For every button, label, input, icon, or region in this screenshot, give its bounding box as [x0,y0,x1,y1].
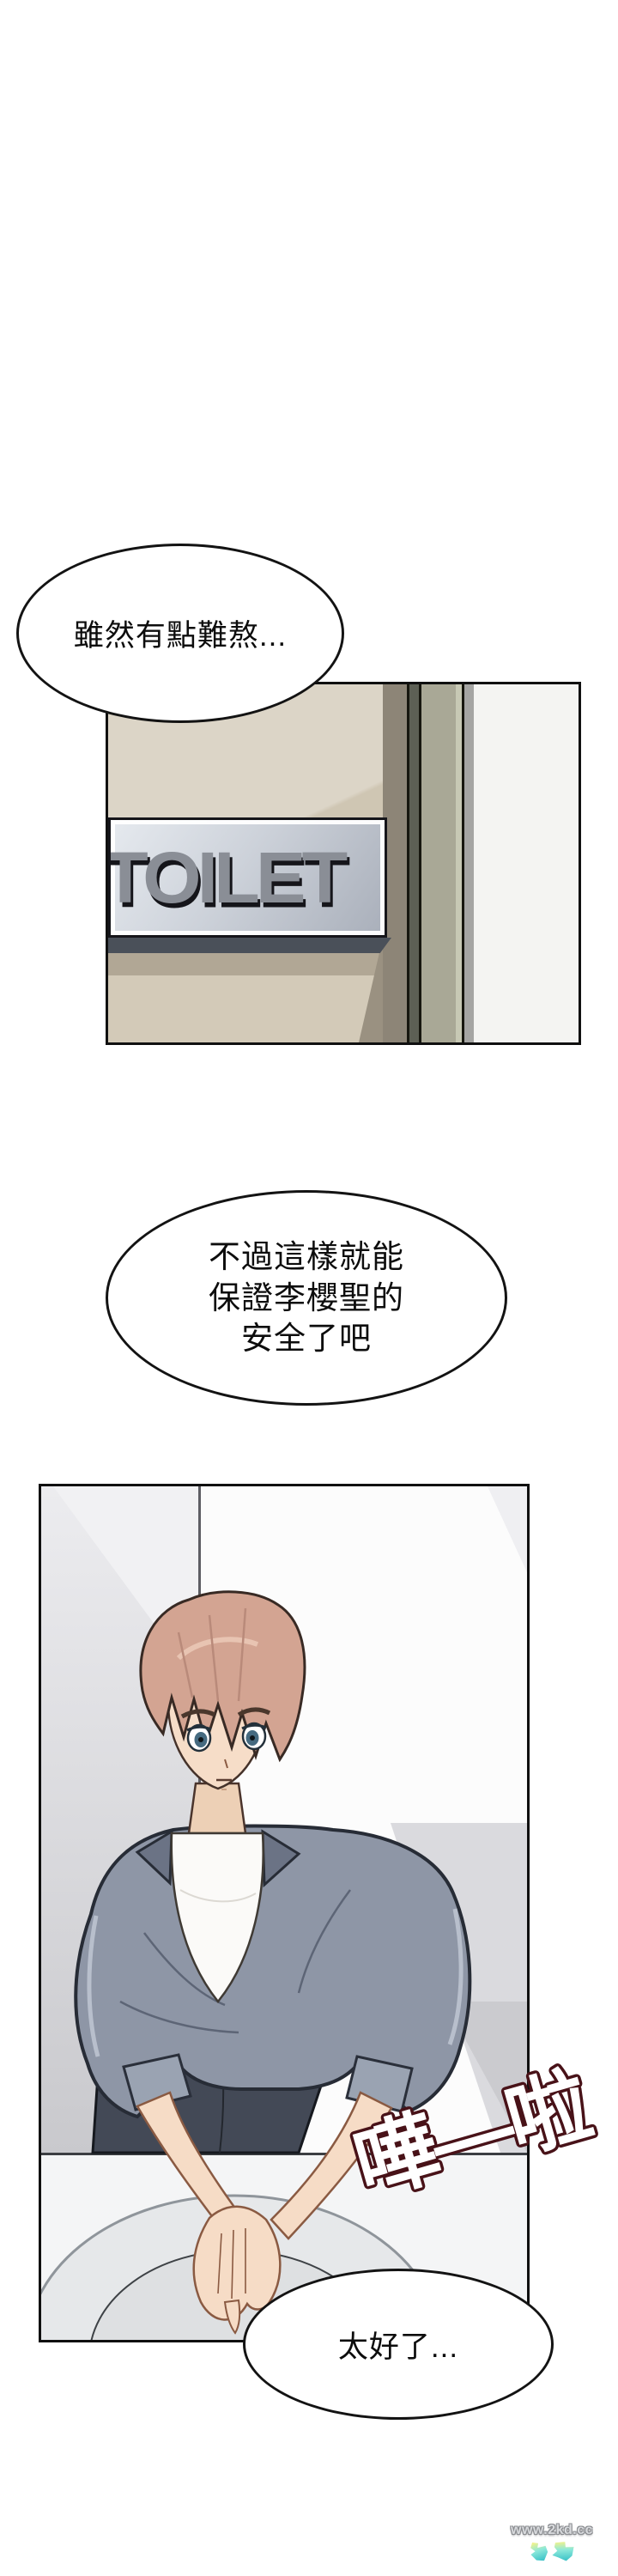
speech-bubble-3: 太好了... [243,2269,554,2420]
speech-line: 不過這樣就能 [209,1236,404,1277]
watermark-logo [494,2539,610,2563]
sfx-splash-text: 嘩—啦 [344,2059,599,2213]
speech-bubble-1: 雖然有點難熬... [16,544,344,723]
watermark-url: www.2kd.cc [494,2523,610,2538]
toilet-sign: TOILET [108,817,387,938]
sfx-splash: 嘩—啦 [324,2016,618,2257]
neck [189,1783,245,1833]
speech-line: 保證李櫻聖的 [209,1278,404,1318]
door-frame-strip [421,684,456,1042]
watermark: www.2kd.cc [494,2523,610,2563]
speech-bubble-2-text: 不過這樣就能 保證李櫻聖的 安全了吧 [209,1236,404,1358]
door-frame-dark-strip [409,684,419,1042]
speech-line: 安全了吧 [209,1318,404,1358]
speech-bubble-3-text: 太好了... [338,2323,458,2366]
door-frame-gray-strip [464,684,474,1042]
sign-shadow-strip [108,938,391,953]
logo-glyph-icon [552,2541,574,2561]
door-lower-band [108,953,383,975]
pupil-left [198,1737,203,1742]
panel-toilet-door: TOILET [106,682,581,1045]
wall [474,684,579,1042]
speech-bubble-2: 不過這樣就能 保證李櫻聖的 安全了吧 [106,1190,507,1406]
comic-page: { "speech": { "bubble1": "雖然有點難熬...", "b… [0,0,618,2576]
door-frame-highlight-strip [456,684,462,1042]
door-lower-panel [108,975,383,1042]
speech-bubble-1-text: 雖然有點難熬... [74,611,287,655]
logo-glyph-icon [529,2540,548,2562]
toilet-sign-text: TOILET [108,835,343,920]
pupil-right [250,1735,255,1741]
